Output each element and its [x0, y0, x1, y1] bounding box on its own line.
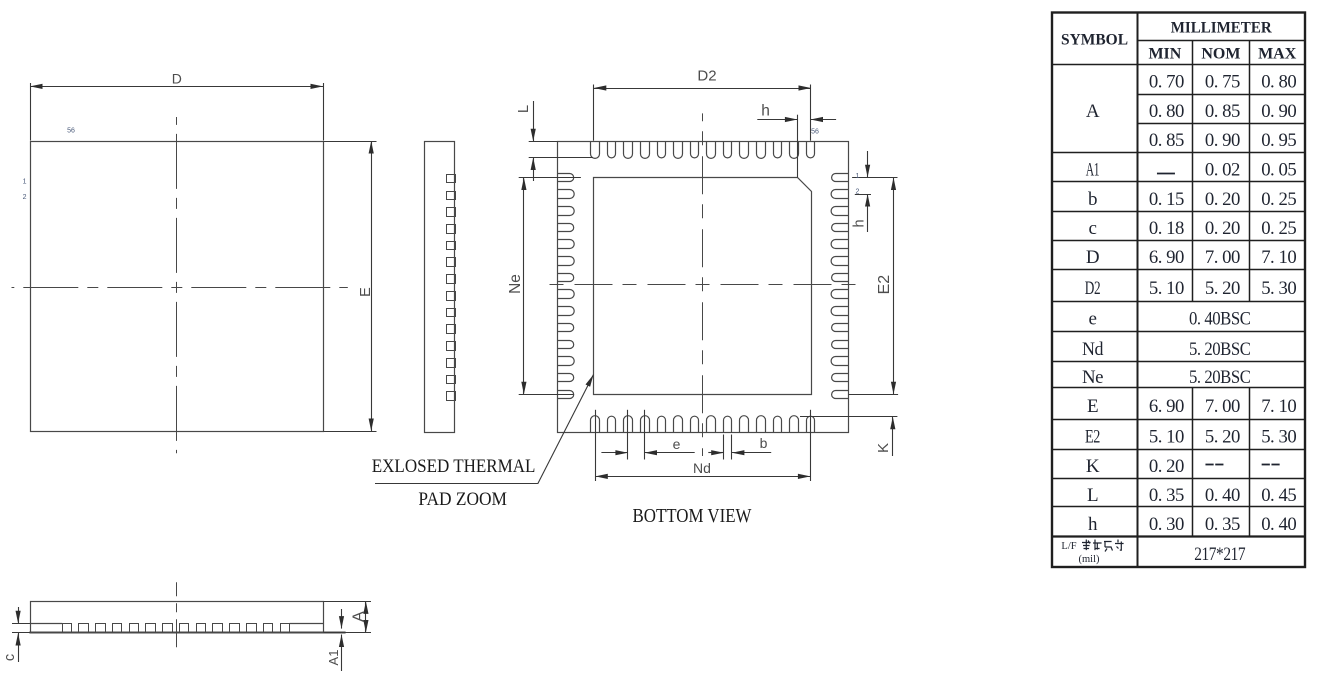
svg-text:0. 20: 0. 20 [1149, 456, 1184, 477]
svg-text:0. 15: 0. 15 [1149, 189, 1184, 210]
svg-text:7. 00: 7. 00 [1205, 247, 1240, 268]
svg-text:0. 70: 0. 70 [1149, 72, 1184, 93]
svg-text:5. 20BSC: 5. 20BSC [1189, 367, 1251, 388]
svg-text:2: 2 [856, 189, 860, 196]
svg-text:7. 10: 7. 10 [1261, 247, 1296, 268]
svg-text:Nd: Nd [693, 460, 711, 476]
svg-text:0. 85: 0. 85 [1149, 130, 1184, 151]
svg-text:E2: E2 [1085, 427, 1100, 448]
svg-text:L: L [516, 105, 532, 113]
svg-text:0. 90: 0. 90 [1261, 101, 1296, 122]
svg-text:0. 80: 0. 80 [1261, 72, 1296, 93]
svg-text:0. 05: 0. 05 [1261, 160, 1296, 181]
svg-text:b: b [1088, 189, 1097, 210]
svg-text:A1: A1 [326, 650, 341, 666]
svg-text:D2: D2 [1085, 278, 1101, 299]
svg-text:6. 90: 6. 90 [1149, 247, 1184, 268]
svg-text:2: 2 [23, 194, 27, 201]
svg-text:MIN: MIN [1148, 45, 1181, 62]
svg-text:56: 56 [811, 129, 819, 136]
svg-text:0. 40: 0. 40 [1261, 514, 1296, 535]
svg-text:NOM: NOM [1201, 45, 1240, 62]
svg-text:SYMBOL: SYMBOL [1061, 32, 1128, 49]
svg-text:L: L [1087, 485, 1098, 506]
svg-text:0. 20: 0. 20 [1205, 218, 1240, 239]
svg-text:7. 00: 7. 00 [1205, 396, 1240, 417]
svg-text:e: e [673, 436, 681, 452]
svg-text:5. 20: 5. 20 [1205, 278, 1240, 299]
svg-text:PAD ZOOM: PAD ZOOM [418, 489, 507, 510]
svg-text:5. 30: 5. 30 [1261, 278, 1296, 299]
svg-text:5. 30: 5. 30 [1261, 427, 1296, 448]
svg-text:E2: E2 [876, 275, 893, 295]
svg-text:A1: A1 [1086, 160, 1100, 181]
svg-text:0. 80: 0. 80 [1149, 101, 1184, 122]
svg-text:1: 1 [23, 179, 27, 186]
svg-text:E: E [1087, 396, 1098, 417]
svg-text:Ne: Ne [1082, 367, 1103, 388]
svg-text:0. 25: 0. 25 [1261, 189, 1296, 210]
svg-text:5. 10: 5. 10 [1149, 278, 1184, 299]
svg-text:h: h [852, 219, 868, 227]
svg-text:56: 56 [67, 128, 75, 135]
svg-text:5. 20BSC: 5. 20BSC [1189, 339, 1251, 360]
svg-text:MILLIMETER: MILLIMETER [1171, 20, 1272, 37]
svg-text:0. 90: 0. 90 [1205, 130, 1240, 151]
svg-text:6. 90: 6. 90 [1149, 396, 1184, 417]
svg-text:0. 25: 0. 25 [1261, 218, 1296, 239]
svg-text:0. 40: 0. 40 [1205, 485, 1240, 506]
svg-text:EXLOSED THERMAL: EXLOSED THERMAL [372, 456, 536, 477]
svg-text:b: b [760, 435, 768, 451]
svg-text:0. 75: 0. 75 [1205, 72, 1240, 93]
svg-text:e: e [1089, 309, 1097, 330]
svg-text:L/F: L/F [1061, 541, 1076, 552]
svg-text:0. 02: 0. 02 [1205, 160, 1240, 181]
svg-text:0. 35: 0. 35 [1149, 485, 1184, 506]
svg-text:0. 45: 0. 45 [1261, 485, 1296, 506]
svg-text:h: h [1088, 514, 1098, 535]
svg-text:A: A [350, 611, 367, 622]
svg-text:BOTTOM VIEW: BOTTOM VIEW [633, 505, 752, 527]
svg-text:K: K [875, 443, 892, 453]
svg-text:7. 10: 7. 10 [1261, 396, 1296, 417]
svg-text:D: D [1086, 247, 1099, 268]
svg-text:D: D [172, 71, 182, 87]
svg-text:(mil): (mil) [1079, 554, 1100, 565]
svg-text:5. 20: 5. 20 [1205, 427, 1240, 448]
svg-text:5. 10: 5. 10 [1149, 427, 1184, 448]
svg-text:0. 95: 0. 95 [1261, 130, 1296, 151]
svg-text:0. 85: 0. 85 [1205, 101, 1240, 122]
svg-text:c: c [1089, 218, 1097, 239]
svg-text:A: A [1086, 101, 1100, 122]
svg-text:c: c [2, 654, 18, 661]
svg-text:217*217: 217*217 [1194, 544, 1245, 565]
svg-text:0. 40BSC: 0. 40BSC [1189, 309, 1251, 330]
svg-text:Nd: Nd [1082, 339, 1104, 360]
svg-text:0. 35: 0. 35 [1205, 514, 1240, 535]
svg-text:Ne: Ne [507, 274, 524, 294]
svg-text:MAX: MAX [1258, 45, 1297, 62]
svg-text:E: E [358, 287, 374, 297]
svg-text:1: 1 [856, 173, 860, 180]
svg-text:D2: D2 [697, 68, 716, 85]
svg-text:h: h [761, 103, 770, 120]
svg-text:0. 20: 0. 20 [1205, 189, 1240, 210]
svg-text:0. 30: 0. 30 [1149, 514, 1184, 535]
svg-text:0. 18: 0. 18 [1149, 218, 1184, 239]
svg-text:K: K [1086, 456, 1100, 477]
